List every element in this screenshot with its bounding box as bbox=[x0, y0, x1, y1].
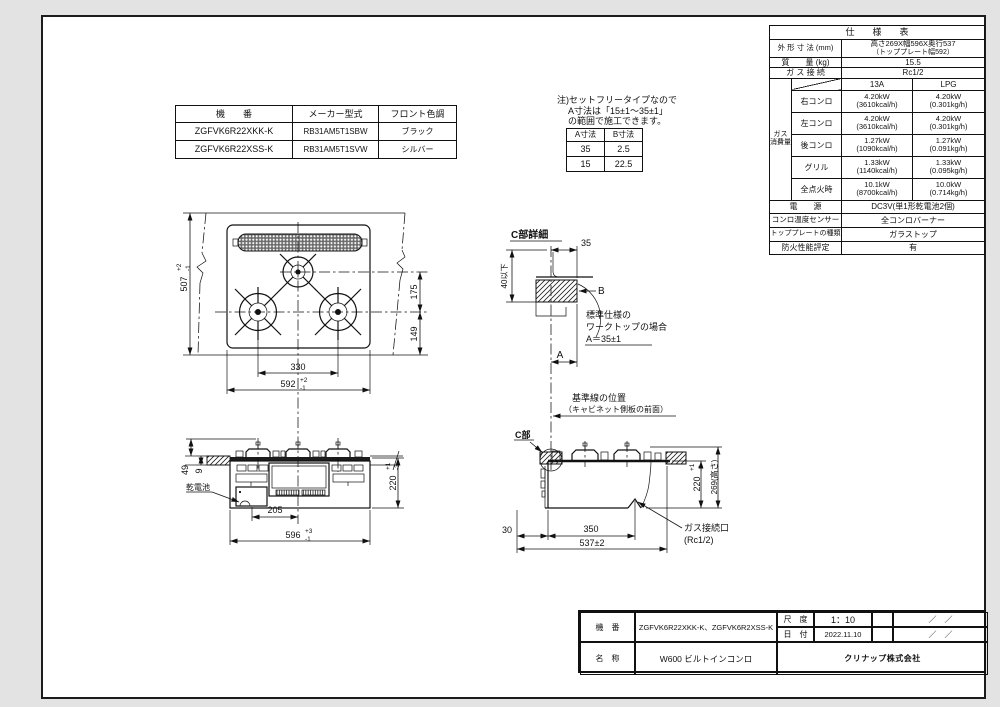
all-burners-13a: 10.1kW(8700kcal/h) bbox=[842, 178, 913, 200]
side-dim-220: 220 bbox=[692, 476, 702, 491]
worktop-section-hatch bbox=[536, 280, 577, 302]
dim-507: 507 bbox=[179, 276, 189, 291]
model-col-kiban: 機 番 bbox=[176, 106, 293, 123]
scale-value: 1：10 bbox=[814, 612, 872, 627]
val: (3610kcal/h) bbox=[842, 101, 912, 110]
spec-plate-label: トッププレートの種類 bbox=[770, 227, 842, 241]
maker-code-2: RB31AM5T1SVW bbox=[293, 141, 379, 159]
spec-fire-value: 有 bbox=[842, 241, 985, 254]
empty-cell bbox=[872, 627, 893, 642]
front-dim-220-tm: -3 bbox=[394, 464, 401, 470]
note-line-3: の範囲で施工できます。 bbox=[568, 116, 677, 127]
spec-diagonal-cell bbox=[792, 78, 842, 90]
spec-gasconn-label: ガ ス 接 続 bbox=[770, 67, 842, 78]
grill-13a: 1.33kW(1140kcal/h) bbox=[842, 156, 913, 178]
spec-power-value: DC3V(単1形乾電池2個) bbox=[842, 200, 985, 213]
spec-col-13a: 13A bbox=[842, 78, 913, 90]
val: (0.091kg/h) bbox=[913, 145, 984, 154]
spec-mass-value: 15.5 bbox=[842, 57, 985, 67]
c-note-2: ワークトップの場合 bbox=[586, 321, 667, 332]
spec-mass-label: 質 量 (kg) bbox=[770, 57, 842, 67]
company-name: クリナップ株式会社 bbox=[777, 642, 988, 675]
all-burners-lpg: 10.0kW(0.714kg/h) bbox=[913, 178, 985, 200]
maker-code-1: RB31AM5T1SBW bbox=[293, 123, 379, 141]
side-dim-537: 537±2 bbox=[580, 538, 605, 548]
drawing-sheet: 507 +2 -1 175 149 330 592 +2 -1 C部詳細 bbox=[0, 0, 1000, 707]
name-value: W600 ビルトインコンロ bbox=[635, 642, 777, 675]
burner-left-lpg: 4.20kW(0.301kg/h) bbox=[913, 112, 985, 134]
revision-slash-2: ／ ／ bbox=[893, 627, 988, 642]
val: (0.095kg/h) bbox=[913, 167, 984, 176]
spec-power-label: 電 源 bbox=[770, 200, 842, 213]
ab-b2: 22.5 bbox=[605, 157, 643, 172]
front-dim-596-tm: -1 bbox=[305, 536, 311, 543]
model-col-maker: メーカー型式 bbox=[293, 106, 379, 123]
burner-left-13a: 4.20kW(3610kcal/h) bbox=[842, 112, 913, 134]
scale-label: 尺 度 bbox=[777, 612, 814, 627]
dim-592-tol-plus: +2 bbox=[300, 377, 308, 384]
model-col-color: フロント色調 bbox=[379, 106, 457, 123]
model-table-header: 機 番 メーカー型式 フロント色調 bbox=[176, 106, 457, 123]
battery-label: 乾電池 bbox=[186, 482, 210, 492]
grill-vent bbox=[238, 234, 362, 251]
label-b: B bbox=[598, 286, 605, 297]
note-line-2: A寸法は「15±1～35±1」 bbox=[568, 106, 677, 117]
val: (0.301kg/h) bbox=[913, 101, 984, 110]
color-2: シルバー bbox=[379, 141, 457, 159]
front-dim-205: 205 bbox=[267, 505, 282, 515]
side-dim-30: 30 bbox=[502, 525, 512, 535]
dim-175: 175 bbox=[409, 284, 419, 299]
spec-consumption-group: ガス 消費量 bbox=[770, 78, 792, 200]
spec-title: 仕 様 表 bbox=[770, 26, 985, 40]
burner-right-13a: 4.20kW(3610kcal/h) bbox=[842, 90, 913, 112]
color-1: ブラック bbox=[379, 123, 457, 141]
dim-507-tol-plus: +2 bbox=[176, 263, 183, 271]
note-line-1: 注)セットフリータイプなので bbox=[557, 95, 677, 106]
spec-gasconn-value: Rc1/2 bbox=[842, 67, 985, 78]
spec-table: 仕 様 表 外 形 寸 法 (mm) 高さ269X幅596X奥行537 （トップ… bbox=[769, 25, 985, 255]
burner-back-label: 後コンロ bbox=[792, 134, 842, 156]
ab-a1: 35 bbox=[567, 142, 605, 157]
burner-right-label: 右コンロ bbox=[792, 90, 842, 112]
model-row: ZGFVK6R22XKK-K RB31AM5T1SBW ブラック bbox=[176, 123, 457, 141]
c-note-3: A＝35±1 bbox=[586, 334, 621, 344]
dim-35: 35 bbox=[581, 238, 591, 248]
front-dim-596: 596 bbox=[285, 530, 300, 540]
ab-a2: 15 bbox=[567, 157, 605, 172]
outer-dim-line1: 高さ269X幅596X奥行537 bbox=[842, 40, 984, 49]
burner-left-label: 左コンロ bbox=[792, 112, 842, 134]
outer-dim-line2: （トッププレート幅592） bbox=[842, 49, 984, 57]
front-dim-596-tp: +3 bbox=[305, 528, 313, 535]
burner-right-lpg: 4.20kW(0.301kg/h) bbox=[913, 90, 985, 112]
dim-507-tol-minus: -1 bbox=[185, 265, 192, 271]
all-burners-label: 全点火時 bbox=[792, 178, 842, 200]
gas-port-label-2: (Rc1/2) bbox=[684, 535, 714, 545]
val: (3610kcal/h) bbox=[842, 123, 912, 132]
c-part-label: C部 bbox=[515, 429, 531, 440]
spec-outer-dim-label: 外 形 寸 法 (mm) bbox=[770, 40, 842, 58]
front-dim-220: 220 bbox=[388, 475, 398, 490]
spec-plate-value: ガラストップ bbox=[842, 227, 985, 241]
dim-149: 149 bbox=[409, 326, 419, 341]
name-label: 名 称 bbox=[580, 642, 635, 675]
dim-592: 592 bbox=[280, 379, 295, 389]
val: (0.301kg/h) bbox=[913, 123, 984, 132]
refline-text-2: （キャビネット側板の前面） bbox=[564, 404, 668, 414]
date-label: 日 付 bbox=[777, 627, 814, 642]
side-dim-269: 269(高さ) bbox=[709, 459, 719, 494]
spec-sensor-label: コンロ温度センサー bbox=[770, 213, 842, 227]
title-block: 機 番 ZGFVK6R22XKK-K、ZGFVK6R2XSS-K 尺 度 1：1… bbox=[578, 610, 986, 673]
front-dim-220-tp: +1 bbox=[385, 462, 392, 470]
burner-back-13a: 1.27kW(1090kcal/h) bbox=[842, 134, 913, 156]
empty-cell bbox=[872, 612, 893, 627]
dim-330: 330 bbox=[290, 362, 305, 372]
gas-port-label-1: ガス接続口 bbox=[684, 522, 729, 533]
spec-col-lpg: LPG bbox=[913, 78, 985, 90]
ab-b1: 2.5 bbox=[605, 142, 643, 157]
dim-40max: 40以下 bbox=[500, 264, 509, 289]
val: (1090kcal/h) bbox=[842, 145, 912, 154]
date-value: 2022.11.10 bbox=[814, 627, 872, 642]
c-detail-title: C部詳細 bbox=[511, 228, 548, 241]
side-dim-220-tm: -3 bbox=[698, 465, 705, 471]
kiban-label: 機 番 bbox=[580, 612, 635, 642]
label-a: A bbox=[557, 350, 564, 361]
spec-fire-label: 防火性能評定 bbox=[770, 241, 842, 254]
grill-lpg: 1.33kW(0.095kg/h) bbox=[913, 156, 985, 178]
front-dim-9: 9 bbox=[194, 468, 204, 473]
spec-sensor-value: 全コンロバーナー bbox=[842, 213, 985, 227]
grill-label: グリル bbox=[792, 156, 842, 178]
revision-slash-1: ／ ／ bbox=[893, 612, 988, 627]
install-note: 注)セットフリータイプなので A寸法は「15±1～35±1」 の範囲で施工できま… bbox=[557, 95, 677, 127]
group-label-shouhi: 消費量 bbox=[770, 139, 791, 147]
side-dim-350: 350 bbox=[583, 524, 598, 534]
ab-dimension-table: A寸法 B寸法 35 2.5 15 22.5 bbox=[566, 128, 643, 172]
c-note-1: 標準仕様の bbox=[586, 309, 631, 320]
val: (8700kcal/h) bbox=[842, 189, 912, 198]
val: (0.714kg/h) bbox=[913, 189, 984, 198]
dim-592-tol-minus: -1 bbox=[300, 385, 306, 392]
model-row: ZGFVK6R22XSS-K RB31AM5T1SVW シルバー bbox=[176, 141, 457, 159]
ab-header-b: B寸法 bbox=[605, 129, 643, 142]
burner-back-lpg: 1.27kW(0.091kg/h) bbox=[913, 134, 985, 156]
side-dim-220-tp: +1 bbox=[689, 463, 696, 471]
model-code-2: ZGFVK6R22XSS-K bbox=[176, 141, 293, 159]
model-code-1: ZGFVK6R22XKK-K bbox=[176, 123, 293, 141]
front-dim-49: 49 bbox=[180, 465, 190, 475]
kiban-value: ZGFVK6R22XKK-K、ZGFVK6R2XSS-K bbox=[635, 612, 777, 642]
val: (1140kcal/h) bbox=[842, 167, 912, 176]
spec-outer-dim-value: 高さ269X幅596X奥行537 （トッププレート幅592） bbox=[842, 40, 985, 58]
ab-header-a: A寸法 bbox=[567, 129, 605, 142]
model-table: 機 番 メーカー型式 フロント色調 ZGFVK6R22XKK-K RB31AM5… bbox=[175, 105, 457, 159]
refline-text-1: 基準線の位置 bbox=[572, 392, 626, 403]
